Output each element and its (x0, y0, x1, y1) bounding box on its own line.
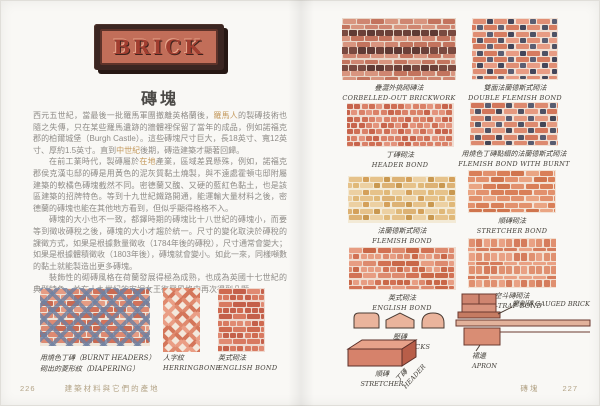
paragraph: 在前工業時代，製磚屬於在地產業，區域差異懸殊，例如，諾福克郡侯克漢屯邸的磚是用黃… (33, 156, 287, 214)
figure-corbelled: 疊澀外挑砌磚法 CORBELLED-OUT BRICKWORK (340, 18, 458, 103)
paragraph: 西元五世紀，當最後一批羅馬軍團撤離英格蘭後，羅馬人的製磚技術也隨之失傳，只在某些… (33, 110, 287, 156)
brick-sign-text: BRICK (113, 35, 204, 59)
figure-flemish-burnt: 用燒色丁磚點綴的法蘭德斯式砌法 FLEMISH BOND WITH BURNT … (450, 102, 578, 179)
brick-swatch-english (349, 247, 456, 290)
paragraph: 磚塊的大小也不一致，都鐸時期的磚塊比十八世紀的磚塊小，而要等到徵收磚稅之後，磚塊… (33, 214, 287, 272)
figure-caption: 用燒色丁磚（BURNT HEADERS） 砌出的菱形紋（DIAPERING） (40, 353, 162, 374)
page-right: 疊澀外挑砌磚法 CORBELLED-OUT BRICKWORK 雙面法蘭德斯式砌… (300, 0, 600, 406)
section-title-right: 磚塊 (520, 384, 539, 393)
brick-swatch-corbelled (342, 18, 456, 80)
page-number-left: 226 (20, 384, 36, 393)
figure-caption: 雙面法蘭德斯式砌法 DOUBLE FLEMISH BOND (455, 83, 575, 103)
figure-herringbone: 人字紋 HERRINGBONE (163, 288, 213, 352)
brick-sign-illustration: BRICK (94, 24, 224, 70)
section-title-left: 建築材料與它們的產地 (65, 384, 160, 393)
brick-sign-panel: BRICK (100, 29, 218, 65)
figure-double-flemish: 雙面法蘭德斯式砌法 DOUBLE FLEMISH BOND (455, 18, 575, 103)
brick-swatch-rattrap (468, 238, 556, 288)
figure-caption: 丁磚砌法 HEADER BOND (345, 150, 455, 170)
page-left: BRICK 磚塊 西元五世紀，當最後一批羅馬軍團撤離英格蘭後，羅馬人的製磚技術也… (0, 0, 300, 406)
brick-swatch-english-red (218, 288, 265, 352)
figure-caption: 英式砌法 ENGLISH BOND (218, 353, 278, 373)
brick-swatch-diaper (40, 288, 150, 346)
brick-swatch-stretcher (468, 170, 556, 213)
figure-diapering: 用燒色丁磚（BURNT HEADERS） 砌出的菱形紋（DIAPERING） (40, 288, 162, 346)
book-spread: BRICK 磚塊 西元五世紀，當最後一批羅馬軍團撤離英格蘭後，羅馬人的製磚技術也… (0, 0, 600, 406)
page-number-right: 227 (562, 384, 578, 393)
brick-swatch-herringbone (163, 288, 200, 352)
brick-swatch-flemish-yellow (348, 176, 456, 223)
page-title: 磚塊 (60, 85, 260, 109)
figure-english-bond-right: 英式砌法 ENGLISH BOND (347, 247, 457, 313)
coping-shapes-icon (352, 310, 448, 330)
figure-caption: 法蘭德斯式砌法 FLEMISH BOND (347, 226, 457, 246)
apron-label: 裙邊 APRON (472, 352, 497, 371)
figure-caption: 疊澀外挑砌磚法 CORBELLED-OUT BRICKWORK (340, 83, 458, 103)
figure-caption: 人字紋 HERRINGBONE (163, 353, 223, 373)
figure-flemish-yellow: 法蘭德斯式砌法 FLEMISH BOND (347, 176, 457, 246)
figure-caption: 順磚砌法 STRETCHER BOND (452, 216, 572, 236)
footer-left: 226 建築材料與它們的產地 (20, 383, 160, 394)
brick-swatch-header (347, 103, 454, 147)
brick-swatch-flemish-burnt (470, 102, 558, 146)
body-text: 西元五世紀，當最後一批羅馬軍團撤離英格蘭後，羅馬人的製磚技術也隨之失傳，只在某些… (33, 110, 287, 296)
brick-swatch-double-flemish (472, 18, 558, 80)
figure-stretcher-bond: 順磚砌法 STRETCHER BOND (452, 170, 572, 236)
gauged-brick-label: 磨削磚 GAUGED BRICK (512, 300, 590, 310)
footer-right: 磚塊 227 (520, 383, 578, 394)
figure-header-bond: 丁磚砌法 HEADER BOND (345, 103, 455, 170)
figure-english-bond-left: 英式砌法 ENGLISH BOND (218, 288, 278, 352)
